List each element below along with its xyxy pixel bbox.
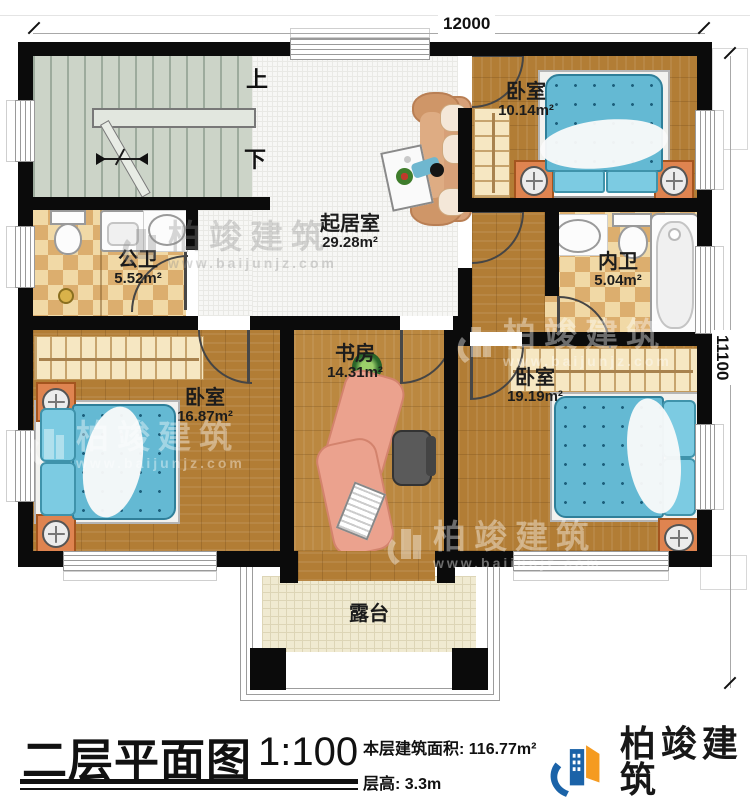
room-label-inner-bath: 内卫 5.04m²: [583, 252, 653, 289]
window: [513, 551, 669, 571]
terrace-threshold: [298, 551, 435, 581]
floor-area-stat: 本层建筑面积: 116.77m²: [363, 735, 536, 759]
wardrobe: [34, 336, 204, 380]
room-name: 卧室: [480, 368, 590, 389]
washing-machine-drum: [107, 222, 139, 246]
sink: [555, 219, 601, 253]
wall: [458, 108, 472, 212]
window: [63, 551, 217, 571]
wall: [444, 330, 458, 551]
wall: [18, 197, 270, 210]
door-leaf: [184, 252, 187, 310]
window: [15, 100, 35, 162]
dimension-top: 12000: [438, 14, 495, 34]
window: [695, 110, 715, 190]
room-area: 14.31m²: [300, 365, 410, 381]
wardrobe-rod: [39, 358, 199, 361]
lamp-icon: [664, 524, 694, 552]
room-label-public-bath: 公卫 5.52m²: [103, 250, 173, 287]
floor-area-label: 本层建筑面积:: [363, 741, 469, 758]
arrow-icon: [96, 153, 106, 165]
stair-down-label: 下: [244, 142, 266, 174]
brand-logo: 柏竣建筑 www.baijunjz.com: [545, 726, 750, 803]
wall: [458, 198, 710, 212]
room-label-living: 起居室 29.28m²: [295, 214, 405, 251]
arrow-icon: [138, 153, 148, 165]
construction-line: [0, 15, 750, 16]
window: [290, 38, 430, 60]
sink: [148, 214, 186, 246]
lamp-icon: [42, 520, 70, 548]
window-sill: [63, 571, 217, 581]
nightstand: [36, 514, 76, 554]
window-sill: [714, 246, 724, 334]
room-area: 5.04m²: [583, 273, 653, 289]
room-name: 卧室: [150, 388, 260, 409]
pillow: [40, 408, 76, 462]
window-sill: [714, 424, 724, 510]
bench-cushion: [606, 170, 658, 193]
wardrobe-rod: [492, 113, 495, 193]
wall: [458, 332, 470, 346]
lamp-icon: [660, 166, 688, 196]
title-underline: [20, 779, 358, 784]
window-sill: [714, 110, 724, 190]
person-head: [430, 163, 444, 177]
room-name: 书房: [300, 344, 410, 365]
floorplan-canvas: 上 下: [0, 0, 750, 803]
flower-vase: [396, 168, 413, 185]
room-name: 公卫: [103, 250, 173, 271]
room-label-study: 书房 14.31m²: [300, 344, 410, 381]
room-name: 卧室: [476, 82, 576, 103]
title-block: 二层平面图 1:100 本层建筑面积: 116.77m² 层高: 3.3m 柏竣…: [0, 720, 750, 803]
wall: [280, 330, 294, 551]
room-area: 29.28m²: [295, 235, 405, 251]
room-area: 19.19m²: [480, 389, 590, 405]
bench-cushion: [553, 170, 605, 193]
room-label-bedroom-left: 卧室 16.87m²: [150, 388, 260, 425]
column: [452, 648, 488, 690]
wall: [458, 268, 472, 332]
floor-area-value: 116.77m²: [469, 741, 537, 758]
window: [695, 424, 715, 510]
plan-scale: 1:100: [258, 730, 358, 775]
wall: [250, 316, 400, 330]
room-area: 10.14m²: [476, 103, 576, 119]
living-room-floor: [198, 210, 252, 316]
room-label-terrace: 露台: [262, 604, 476, 625]
window-sill: [513, 571, 669, 581]
lamp-icon: [520, 166, 548, 196]
floor-height-label: 层高:: [363, 776, 405, 793]
bathtub-drain: [668, 228, 681, 241]
office-chair-back: [426, 436, 436, 476]
floor-drain: [58, 288, 74, 304]
wall: [522, 332, 697, 346]
stair-up-label: 上: [246, 62, 268, 94]
wall: [545, 212, 559, 296]
brand-name: 柏竣建筑: [620, 726, 750, 798]
door-leaf: [247, 330, 250, 382]
room-name: 内卫: [583, 252, 653, 273]
room-area: 5.52m²: [103, 271, 173, 287]
wardrobe: [474, 108, 510, 198]
brand-logo-icon: [545, 740, 614, 803]
table-item: [404, 156, 411, 163]
wall: [437, 567, 455, 583]
wall: [186, 210, 198, 250]
column: [250, 648, 286, 690]
wall: [280, 567, 298, 583]
title-underline: [20, 788, 358, 790]
room-label-bedroom-top: 卧室 10.14m²: [476, 82, 576, 119]
window: [15, 226, 35, 288]
room-area: 16.87m²: [150, 409, 260, 425]
floor-height-value: 3.3m: [405, 776, 441, 793]
pillow: [40, 462, 76, 516]
stair-landing-rail: [92, 108, 256, 128]
floor-height-stat: 层高: 3.3m: [363, 770, 441, 794]
window: [695, 246, 715, 334]
window: [15, 430, 35, 502]
wall: [18, 316, 198, 330]
door-leaf: [470, 346, 473, 398]
room-name: 露台: [262, 604, 476, 625]
room-name: 起居室: [295, 214, 405, 235]
toilet: [54, 223, 82, 255]
dimension-line: [33, 33, 705, 34]
brand-text: 柏竣建筑 www.baijunjz.com: [620, 726, 750, 803]
dimension-right: 11100: [712, 330, 732, 385]
room-label-bedroom-right: 卧室 19.19m²: [480, 368, 590, 405]
